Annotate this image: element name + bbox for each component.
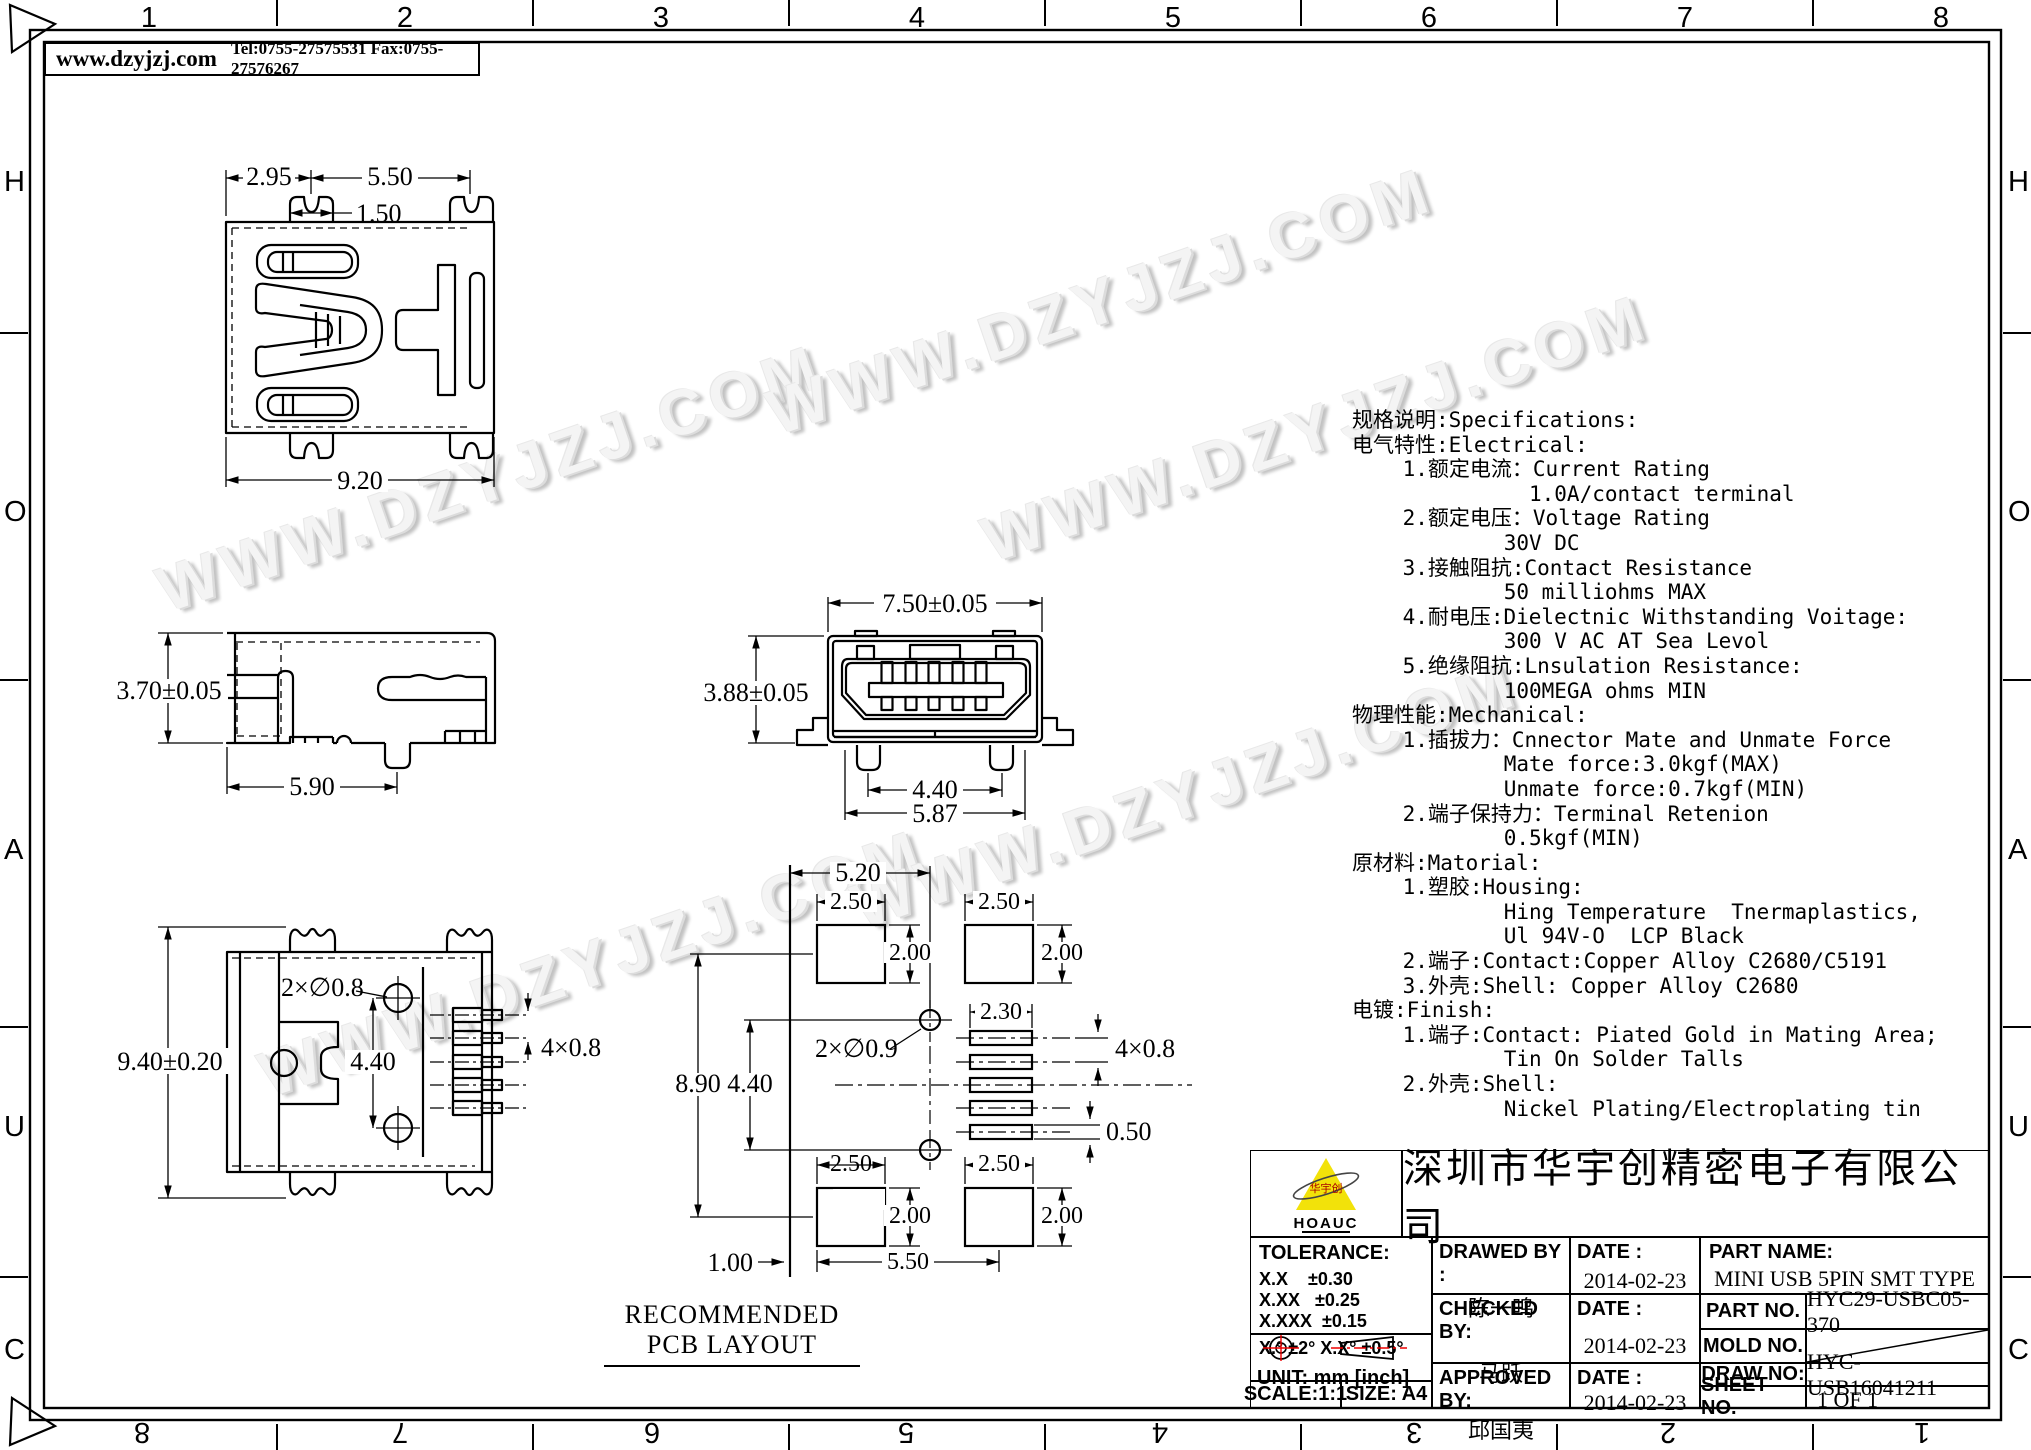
zone-number-bottom: 1 [1914, 1415, 1930, 1448]
dim-front-587: 5.87 [912, 799, 958, 828]
drawed-date: 2014-02-23 [1577, 1268, 1693, 1294]
zone-number-top: 3 [653, 2, 669, 35]
dim-pcb-250: 2.50 [830, 1151, 872, 1177]
zone-number-bottom: 7 [392, 1415, 408, 1448]
zone-number-top: 8 [1933, 2, 1949, 35]
drawed-by-cell: DRAWED BY : 陈一鸣 [1432, 1237, 1570, 1294]
logo-brand-text: HOAUC [1294, 1215, 1359, 1232]
dim-top-920: 9.20 [337, 466, 383, 495]
pcb-layout-caption: RECOMMENDED PCB LAYOUT [604, 1300, 860, 1367]
company-logo: 华宇创 HOAUC [1266, 1152, 1386, 1236]
projection-symbol [1251, 1335, 1431, 1362]
zone-letter-right: A [2008, 834, 2027, 867]
zone-number-top: 6 [1421, 2, 1437, 35]
dim-pcb-200: 2.00 [1041, 1203, 1083, 1229]
zone-number-bottom: 5 [898, 1415, 914, 1448]
dim-front-388: 3.88±0.05 [703, 678, 808, 707]
approved-by-cell: APPROVED BY: 邱国夷 [1432, 1363, 1570, 1408]
dim-pcb-250: 2.50 [978, 889, 1020, 915]
dim-pcb-050: 0.50 [1106, 1117, 1152, 1146]
drawed-date-cell: DATE : 2014-02-23 [1570, 1237, 1700, 1294]
dim-pcb-440: 4.40 [727, 1069, 773, 1098]
dim-pcb-550: 5.50 [887, 1249, 929, 1275]
projection-cell: UNIT: mm [inch] [1250, 1334, 1432, 1381]
zone-letter-right: C [2008, 1334, 2029, 1367]
dim-pcb-100: 1.00 [708, 1248, 754, 1277]
dim-bottom-940: 9.40±0.20 [117, 1047, 222, 1076]
dim-pcb-520: 5.20 [835, 858, 881, 887]
company-name: 深圳市华宇创精密电子有限公司 [1402, 1150, 1989, 1237]
logo-mark-text: 华宇创 [1310, 1181, 1343, 1195]
draw-no-value: HYC-USB16041211 [1806, 1363, 1989, 1386]
dim-pcb-200: 2.00 [1041, 940, 1083, 966]
crosshair-icon [1263, 1335, 1299, 1361]
dim-pcb-250: 2.50 [830, 889, 872, 915]
zone-letter-right: U [2008, 1111, 2029, 1144]
view-pcb: 5.20 2.50 2.50 2.00 2.00 2×∅0.9 8.90 4.4… [670, 858, 1192, 1277]
logo-cell: 华宇创 HOAUC [1250, 1150, 1402, 1237]
dim-bottom-pitch: 4×0.8 [541, 1033, 601, 1062]
zone-letter-left: A [4, 834, 23, 867]
checked-by-cell: CHECKED BY: 马跃 [1432, 1294, 1570, 1363]
part-no-value: HYC29-USBC05-370 [1806, 1294, 1989, 1329]
dim-side-590: 5.90 [289, 772, 335, 801]
website-text: www.dzyjzj.com [56, 46, 217, 72]
zone-number-bottom: 2 [1660, 1415, 1676, 1448]
approved-date-cell: DATE : 2014-02-23 [1570, 1363, 1700, 1408]
approved-by-label: APPROVED BY: [1439, 1367, 1563, 1413]
sheet-no-value: 1 OF 1 [1806, 1386, 1989, 1408]
approved-by-name: 邱国夷 [1439, 1413, 1563, 1445]
dim-pcb-250: 2.50 [978, 1151, 1020, 1177]
dim-bottom-440: 4.40 [350, 1047, 396, 1076]
drawing-sheet: WWW.DZYJZJ.COM WWW.DZYJZJ.COM WWW.DZYJZJ… [0, 0, 2031, 1450]
dim-pcb-200: 2.00 [889, 940, 931, 966]
tolerance-values: X.X ±0.30 X.XX ±0.25 X.XXX ±0.15 [1259, 1269, 1423, 1332]
checked-by-label: CHECKED BY: [1439, 1298, 1563, 1344]
sheet-no-label: SHEET NO. [1700, 1386, 1806, 1408]
zone-letter-left: C [4, 1334, 25, 1367]
zone-number-top: 2 [397, 2, 413, 35]
part-no-label: PART NO. [1700, 1294, 1806, 1329]
checked-date: 2014-02-23 [1577, 1333, 1693, 1359]
drawed-by-label: DRAWED BY : [1439, 1241, 1563, 1287]
zone-letter-left: U [4, 1111, 25, 1144]
zone-letter-left: O [4, 496, 27, 529]
dim-bottom-holes: 2×∅0.8 [281, 973, 364, 1002]
date-label: DATE : [1577, 1241, 1693, 1264]
zone-letter-left: H [4, 166, 25, 199]
zone-letter-right: O [2008, 496, 2031, 529]
dim-front-750: 7.50±0.05 [882, 589, 987, 618]
zone-number-top: 5 [1165, 2, 1181, 35]
scale-label: SCALE:1:1 [1250, 1381, 1341, 1408]
view-side: 3.70±0.05 5.90 [110, 633, 495, 801]
checked-date-cell: DATE : 2014-02-23 [1570, 1294, 1700, 1363]
dim-pcb-230: 2.30 [980, 999, 1022, 1025]
part-name-label: PART NAME: [1709, 1241, 1980, 1264]
dim-pcb-890: 8.90 [675, 1069, 721, 1098]
zone-number-top: 1 [141, 2, 157, 35]
dim-top-295: 2.95 [246, 162, 292, 191]
zone-number-bottom: 3 [1406, 1415, 1422, 1448]
zone-number-bottom: 4 [1152, 1415, 1168, 1448]
dim-top-150: 1.50 [356, 199, 402, 228]
dim-side-370: 3.70±0.05 [116, 676, 221, 705]
dim-pcb-200: 2.00 [889, 1203, 931, 1229]
view-top: 2.95 5.50 1.50 9.20 [226, 162, 494, 495]
size-label: SIZE: A4 [1341, 1381, 1432, 1408]
tolerance-cell: TOLERANCE: X.X ±0.30 X.XX ±0.25 X.XXX ±0… [1250, 1237, 1432, 1334]
zone-number-bottom: 8 [134, 1415, 150, 1448]
approved-date: 2014-02-23 [1577, 1390, 1693, 1416]
zone-letter-right: H [2008, 166, 2029, 199]
contact-text: Tel:0755-27575531 Fax:0755-27576267 [231, 39, 468, 79]
tolerance-label: TOLERANCE: [1259, 1242, 1423, 1265]
dim-top-550: 5.50 [367, 162, 413, 191]
title-block: 华宇创 HOAUC 深圳市华宇创精密电子有限公司 TOLERANCE: X.X … [1250, 1150, 1989, 1408]
mold-no-label: MOLD NO. [1700, 1329, 1806, 1363]
view-bottom: 9.40±0.20 2×∅0.8 4.40 4×0.8 [106, 927, 601, 1198]
specifications-text: 规格说明:Specifications: 电气特性:Electrical: 1.… [1352, 408, 1938, 1121]
date-label: DATE : [1577, 1367, 1693, 1390]
zone-number-top: 7 [1677, 2, 1693, 35]
zone-number-top: 4 [909, 2, 925, 35]
dim-pcb-pitch: 4×0.8 [1115, 1034, 1175, 1063]
date-label: DATE : [1577, 1298, 1693, 1321]
company-header-box: www.dzyjzj.com Tel:0755-27575531 Fax:075… [44, 42, 480, 76]
dim-pcb-holes: 2×∅0.9 [815, 1034, 898, 1063]
view-front: 7.50±0.05 3.88±0.05 4.40 5.87 [694, 589, 1073, 828]
zone-number-bottom: 6 [644, 1415, 660, 1448]
